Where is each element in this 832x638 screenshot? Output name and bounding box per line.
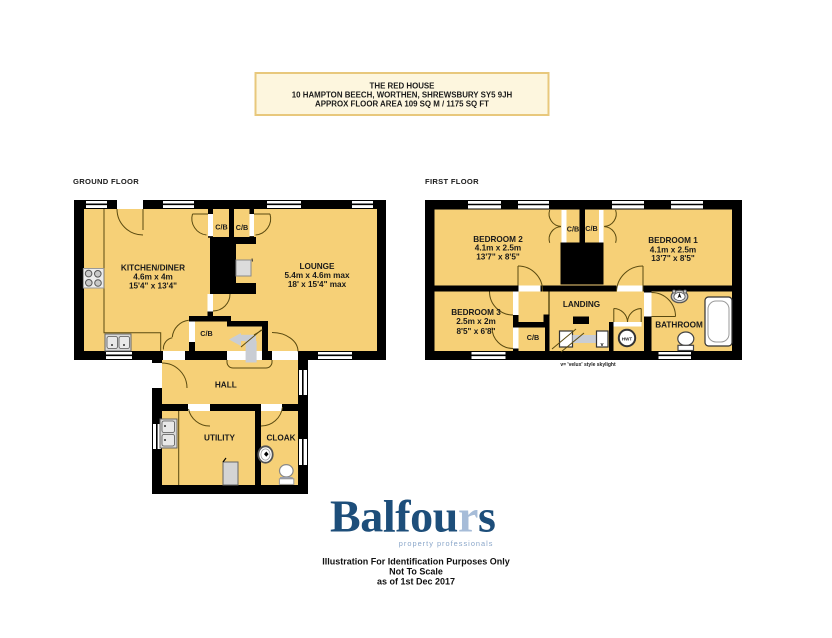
svg-text:18' x 15'4" max: 18' x 15'4" max (288, 280, 347, 289)
svg-text:FIRST FLOOR: FIRST FLOOR (425, 177, 479, 186)
svg-text:13'7" x 8'5": 13'7" x 8'5" (651, 254, 695, 263)
svg-text:as of 1st Dec 2017: as of 1st Dec 2017 (377, 577, 455, 587)
svg-text:BATHROOM: BATHROOM (655, 321, 703, 330)
svg-text:5.4m x 4.6m max: 5.4m x 4.6m max (284, 271, 350, 280)
svg-text:v= 'velux' style skylight: v= 'velux' style skylight (560, 362, 616, 368)
svg-text:C/B: C/B (215, 223, 227, 232)
svg-text:C/B: C/B (567, 225, 579, 234)
svg-text:HALL: HALL (215, 381, 237, 390)
svg-text:C/B: C/B (236, 223, 248, 232)
svg-text:8'5" x 6'8": 8'5" x 6'8" (457, 327, 496, 336)
svg-text:15'4" x 13'4": 15'4" x 13'4" (129, 282, 177, 291)
svg-text:10 HAMPTON BEECH, WORTHEN, SHR: 10 HAMPTON BEECH, WORTHEN, SHREWSBURY SY… (292, 91, 513, 100)
svg-text:13'7" x 8'5": 13'7" x 8'5" (476, 253, 520, 262)
svg-text:4.6m x 4m: 4.6m x 4m (133, 273, 173, 282)
svg-text:UTILITY: UTILITY (204, 434, 235, 443)
svg-text:property professionals: property professionals (399, 539, 494, 548)
svg-text:HWT: HWT (622, 337, 632, 342)
svg-text:C/B: C/B (527, 333, 539, 342)
svg-text:GROUND FLOOR: GROUND FLOOR (73, 177, 139, 186)
svg-text:LOUNGE: LOUNGE (299, 262, 335, 271)
svg-text:LANDING: LANDING (563, 300, 600, 309)
svg-text:Not To Scale: Not To Scale (389, 567, 443, 577)
svg-text:2.5m x 2m: 2.5m x 2m (456, 317, 496, 326)
svg-text:KITCHEN/DINER: KITCHEN/DINER (121, 264, 185, 273)
svg-text:THE RED HOUSE: THE RED HOUSE (370, 82, 435, 91)
svg-text:BEDROOM 1: BEDROOM 1 (648, 236, 698, 245)
svg-text:CLOAK: CLOAK (266, 434, 295, 443)
svg-text:Illustration For Identificatio: Illustration For Identification Purposes… (322, 557, 510, 567)
svg-text:Balfours: Balfours (330, 491, 496, 542)
svg-text:4.1m x 2.5m: 4.1m x 2.5m (475, 244, 521, 253)
svg-text:BEDROOM 3: BEDROOM 3 (451, 308, 501, 317)
svg-text:C/B: C/B (200, 329, 212, 338)
svg-text:APPROX FLOOR AREA 109 SQ M / 1: APPROX FLOOR AREA 109 SQ M / 1175 SQ FT (315, 100, 489, 109)
svg-text:C/B: C/B (585, 224, 597, 233)
